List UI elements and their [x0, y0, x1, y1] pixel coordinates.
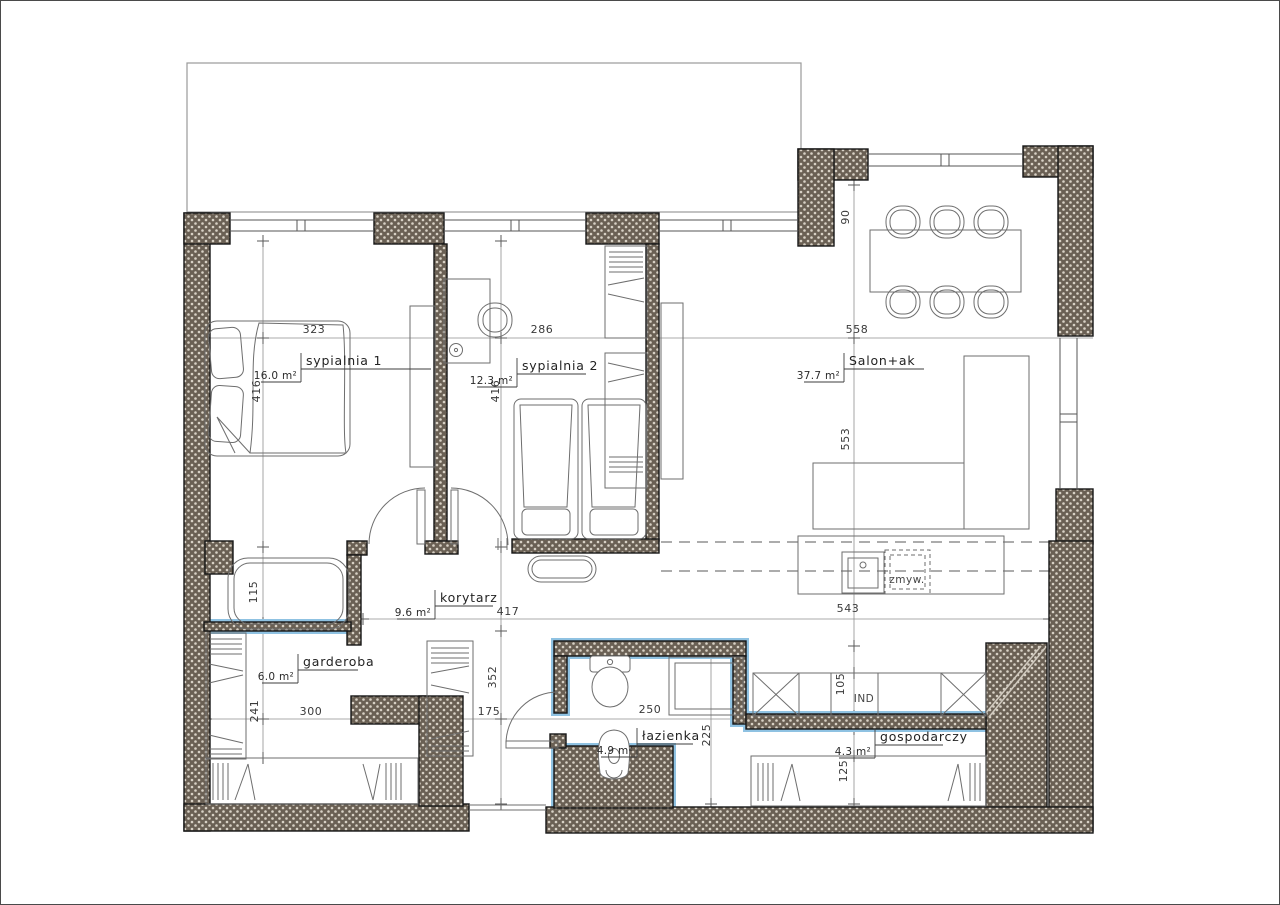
induction-hob-label: IND: [854, 693, 875, 705]
floor-plan-svg: 323 286 558 300 175 250 417 543 416 416 …: [1, 1, 1280, 905]
double-bed: [205, 321, 350, 456]
door-bedroom1: [369, 488, 425, 544]
window-bedroom2: [444, 220, 586, 231]
dim-salon-depth: 553: [839, 428, 852, 451]
appliance-left: [753, 673, 799, 716]
dining-table: [870, 230, 1021, 292]
wall-right-upper: [1058, 146, 1093, 336]
room-label-gospodarczy: gospodarczy 4.3 m²: [835, 729, 968, 758]
window-salon-east: [1060, 338, 1077, 489]
svg-text:12.3 m²: 12.3 m²: [470, 375, 513, 387]
dim-gospodarczy-depth: 125: [837, 760, 850, 783]
dim-bathroom-width: 250: [639, 703, 662, 716]
room-label-bedroom2: sypialnia 2 12.3 m²: [470, 358, 599, 387]
wall-bottom-left: [184, 804, 469, 831]
svg-text:4.9 m²: 4.9 m²: [597, 745, 633, 757]
svg-text:sypialnia 1: sypialnia 1: [306, 353, 382, 368]
svg-text:gospodarczy: gospodarczy: [880, 729, 968, 744]
svg-text:37.7 m²: 37.7 m²: [797, 370, 840, 382]
closet-bedroom2-b: [605, 353, 647, 488]
wardrobe-bedroom1: [410, 306, 435, 467]
dim-garderoba-width: 300: [300, 705, 323, 718]
svg-text:Salon+ak: Salon+ak: [849, 353, 915, 368]
dim-garderoba-depth: 241: [248, 700, 261, 723]
dim-bedroom1-width: 323: [303, 323, 326, 336]
wall-bath-west: [554, 656, 567, 713]
desk-chair: [478, 303, 512, 337]
svg-text:łazienka: łazienka: [642, 728, 700, 743]
wall-pier-c: [586, 213, 659, 244]
wall-pier-a: [184, 213, 230, 244]
svg-text:4.3 m²: 4.3 m²: [835, 746, 871, 758]
washbasin: [590, 656, 630, 707]
outlet-symbol: [450, 344, 463, 357]
wall-right-mid: [1056, 489, 1093, 544]
wall-salon-left: [798, 149, 834, 246]
wall-bath-east: [733, 656, 746, 724]
wall-bottom-right: [546, 807, 1093, 833]
dim-kitchen-row: 105: [834, 673, 847, 696]
dim-vestibule-width: 175: [478, 705, 501, 718]
door-bedroom2: [451, 488, 508, 545]
dim-vestibule-depth: 352: [486, 666, 499, 689]
wall-tub-partition: [204, 622, 351, 631]
dim-tub-niche: 115: [247, 581, 260, 604]
twin-bed-right: [582, 399, 646, 539]
window-bedroom1: [230, 220, 374, 231]
svg-text:garderoba: garderoba: [303, 654, 374, 669]
wall-bedroom2-south: [512, 539, 659, 553]
wall-garderoba-h: [351, 696, 426, 724]
wall-right-lower: [1049, 541, 1093, 831]
room-label-salon: Salon+ak 37.7 m²: [797, 353, 924, 382]
room-label-bedroom1: sypialnia 1 16.0 m²: [254, 353, 431, 382]
room-label-corridor: korytarz 9.6 m²: [395, 590, 498, 619]
svg-text:9.6 m²: 9.6 m²: [395, 607, 431, 619]
furniture: [205, 206, 1029, 806]
window-dining: [868, 154, 1023, 166]
wall-bath-north: [554, 641, 746, 656]
svg-text:sypialnia 2: sypialnia 2: [522, 358, 598, 373]
door-width-ticks: [498, 538, 507, 550]
dim-bedroom1-depth: 416: [250, 380, 263, 403]
svg-text:6.0 m²: 6.0 m²: [258, 671, 294, 683]
entrance-threshold: [469, 805, 546, 810]
dim-salon-bottom-width: 543: [837, 602, 860, 615]
svg-text:korytarz: korytarz: [440, 590, 498, 605]
window-salon-top: [659, 220, 798, 231]
closet-bedroom2-a: [605, 246, 647, 338]
twin-bed-left: [514, 399, 578, 539]
wall-bedroom2-salon: [646, 244, 659, 541]
wall-door-stub: [347, 541, 367, 555]
dim-bathroom-depth: 225: [700, 724, 713, 747]
dim-salon-width: 558: [846, 323, 869, 336]
closet-gospodarczy: [751, 756, 986, 806]
tv-sideboard: [661, 303, 683, 479]
dim-corridor-width: 417: [497, 605, 520, 618]
bench: [528, 556, 596, 582]
wall-bed1-pier: [205, 541, 233, 574]
wall-shaft-block: [986, 643, 1047, 819]
dishwasher: [885, 550, 930, 594]
dishwasher-label: zmyw.: [889, 574, 924, 586]
upper-cabinet-dashed-lines: [661, 542, 1049, 571]
wall-bedroom-divider: [434, 244, 447, 545]
svg-text:16.0 m²: 16.0 m²: [254, 370, 297, 382]
closet-garderoba-bottom: [206, 758, 418, 804]
floor-plan-sheet: 323 286 558 300 175 250 417 543 416 416 …: [0, 0, 1280, 905]
wall-pier-b: [374, 213, 444, 244]
balcony-outline: [187, 63, 801, 212]
dining-chairs: [886, 206, 1008, 318]
wall-divider-foot: [425, 541, 458, 554]
dim-dining-depth: 90: [839, 209, 852, 224]
closet-garderoba-west: [206, 633, 246, 759]
appliance-right: [941, 673, 986, 716]
kitchen-sink: [842, 552, 884, 593]
dim-bedroom2-width: 286: [531, 323, 554, 336]
room-label-garderoba: garderoba 6.0 m²: [258, 654, 375, 683]
